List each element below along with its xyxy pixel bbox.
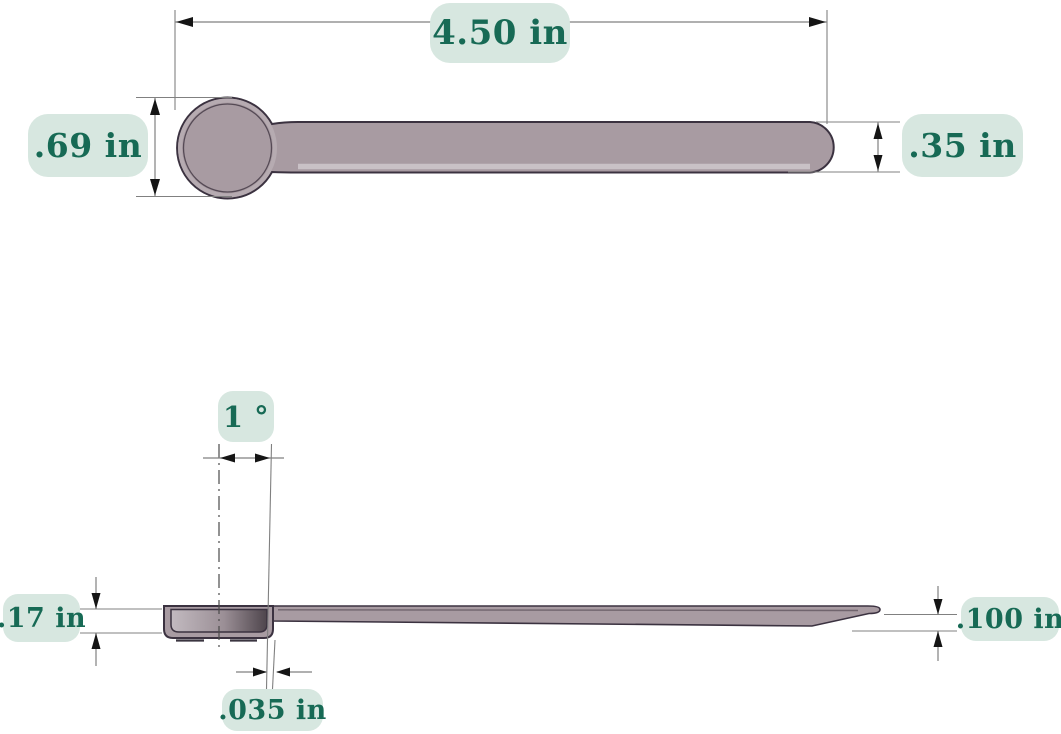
dim-wall-thickness [236, 640, 312, 689]
spoon-top-view [177, 98, 834, 199]
handle-shade-line [278, 610, 858, 611]
arrow-right [253, 668, 267, 677]
dim-label-overall-length: 4.50 in [430, 3, 570, 63]
dim-tip-thickness [852, 586, 957, 661]
arrow-up [874, 123, 883, 139]
arrow-down [92, 593, 101, 609]
arrow-up [92, 633, 101, 649]
spoon-side-view [164, 606, 880, 641]
ext-line [273, 640, 276, 689]
arrow-right [255, 454, 270, 463]
arrow-left [276, 668, 290, 677]
taper-line [267, 444, 272, 689]
arrow-right [809, 17, 826, 27]
spoon-side-handle [273, 606, 880, 626]
spoon-dimension-diagram: 4.50 in .69 in .35 in 1 ° .17 in .100 in… [0, 0, 1061, 734]
dim-bowl-depth [80, 577, 162, 666]
dim-label-wall-thickness: .035 in [222, 689, 323, 731]
diagram-canvas [0, 0, 1061, 734]
arrow-up [150, 99, 160, 116]
arrow-left [220, 454, 235, 463]
arrow-up [934, 631, 943, 647]
dim-label-bowl-depth: .17 in [3, 594, 80, 642]
dim-label-handle-width: .35 in [902, 114, 1023, 177]
dim-taper-angle [203, 444, 284, 689]
dim-label-bowl-diameter: .69 in [28, 114, 148, 177]
arrow-down [874, 155, 883, 171]
arrow-left [176, 17, 193, 27]
arrow-down [150, 179, 160, 196]
dim-label-tip-thickness: .100 in [961, 597, 1059, 641]
arrow-down [934, 599, 943, 615]
dim-label-taper-angle: 1 ° [218, 391, 274, 442]
